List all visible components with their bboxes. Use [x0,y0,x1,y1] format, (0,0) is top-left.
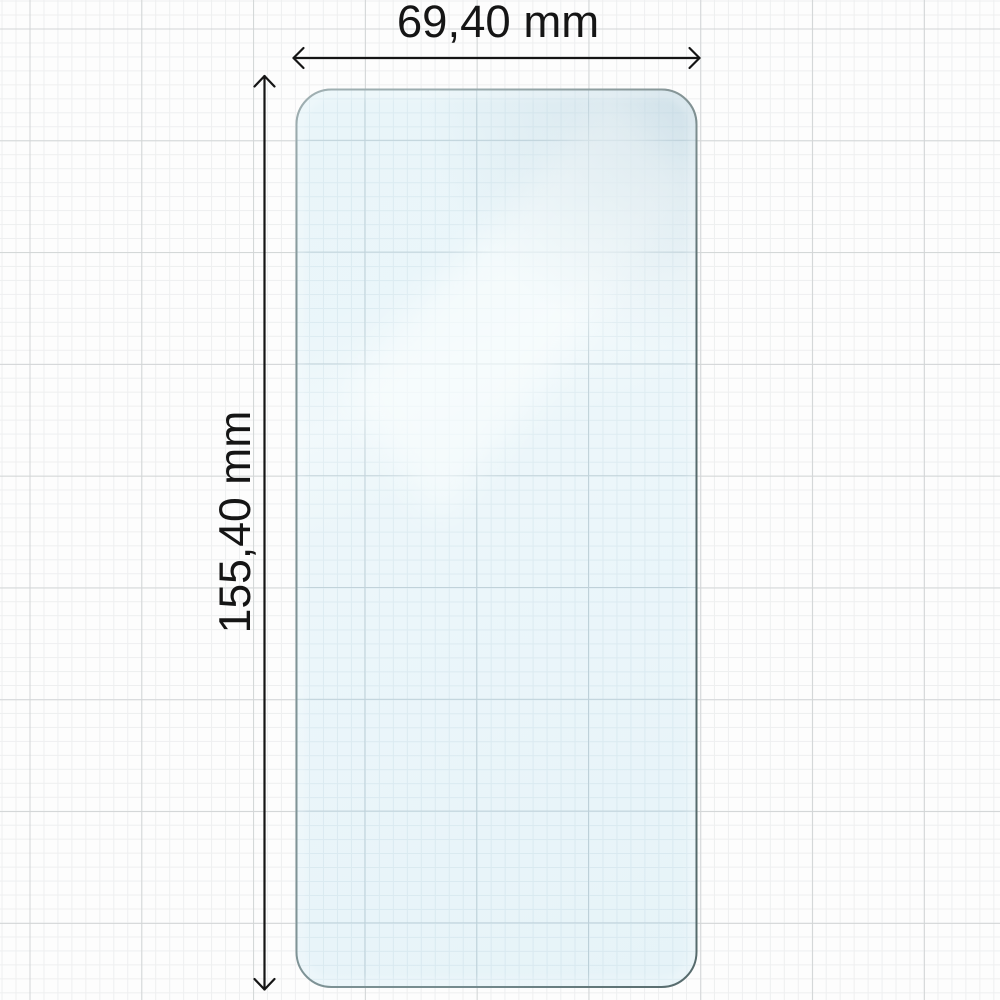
svg-text:69,40 mm: 69,40 mm [397,0,599,47]
svg-text:155,40 mm: 155,40 mm [211,411,260,634]
